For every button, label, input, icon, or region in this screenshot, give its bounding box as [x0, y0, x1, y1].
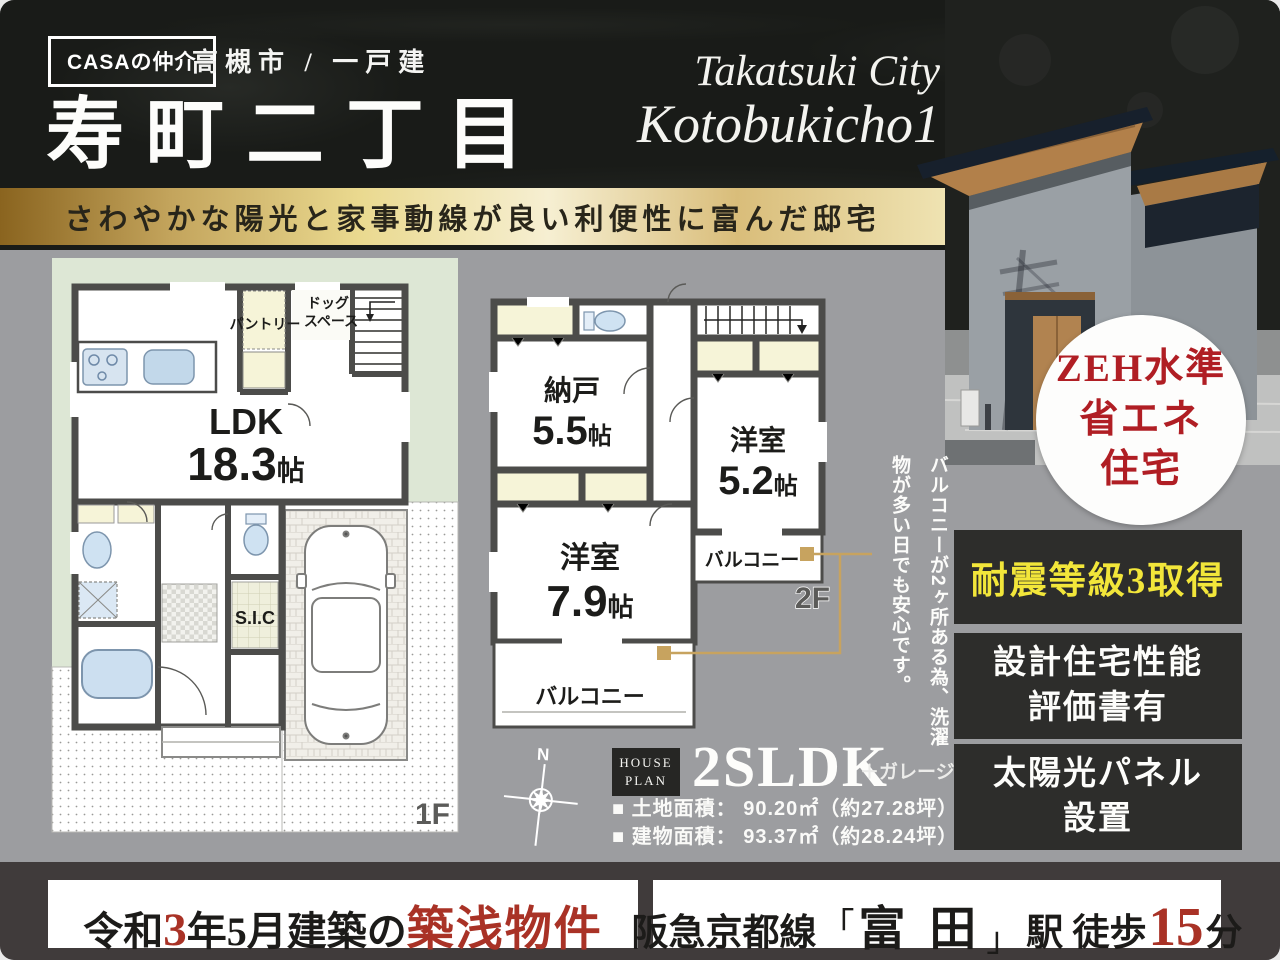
station-access-banner: 阪急京都線「富 田」駅 徒歩15分 [653, 880, 1221, 948]
dog-space-label-1: ドッグ [307, 295, 349, 311]
walk-minutes-unit: 分 [1206, 902, 1243, 956]
performance-report-line2: 評価書有 [1028, 686, 1168, 731]
station-walk-label: 駅 徒歩 [1026, 902, 1146, 956]
floorplan-1f: パントリー ドッグ スペース LDK 18.3帖 S.I.C 1F [50, 252, 460, 837]
built-year-seg4: 築浅物件 [407, 890, 603, 959]
house-plan-tag: HOUSE PLAN [612, 748, 680, 796]
balcony-annotation-text: バルコニーが2ヶ所ある為、洗濯物が多い日でも安心です。 [864, 455, 956, 755]
floorplan-2f: 納戸 5.5帖 洋室 5.2帖 洋室 7.9帖 バルコニー バルコニー 2F [472, 272, 882, 742]
rail-line-name: 阪急京都線 [632, 902, 817, 956]
built-year-seg2: 3 [163, 903, 187, 957]
balcony-bottom-label: バルコニー [535, 684, 645, 709]
house-plan-tag-line2: PLAN [625, 772, 667, 790]
compass-n-label: N [537, 745, 550, 765]
land-area: ■ 土地面積： 90.20㎡（約27.28坪） [612, 792, 958, 821]
station-name: 富 田 [859, 890, 983, 959]
built-year-banner: 令和3年5月建築の築浅物件 [48, 880, 638, 948]
solar-panel-line2: 設置 [1063, 797, 1133, 842]
floor-label-1f: 1F [415, 798, 450, 831]
performance-report-line1: 設計住宅性能 [993, 641, 1203, 686]
solar-panel-line1: 太陽光パネル [993, 752, 1203, 797]
performance-report-badge: 設計住宅性能 評価書有 [954, 633, 1242, 739]
property-title: 寿町二丁目 [46, 72, 546, 184]
built-year-seg1: 令和 [83, 899, 163, 957]
compass: N [499, 742, 582, 852]
west-room-52-label: 洋室 [730, 424, 786, 456]
flyer-page: CASAの仲介 高槻市 / 一戸建 寿町二丁目 Takatsuki City K… [0, 0, 1280, 960]
storage-label: 納戸 [544, 374, 600, 406]
bracket-open: 「 [821, 898, 855, 947]
toilet-2f [584, 311, 625, 331]
washbasin [83, 532, 111, 568]
zeh-badge: ZEH水準 省エネ 住宅 [1036, 315, 1246, 525]
seismic-grade-badge: 耐震等級3取得 [954, 530, 1242, 624]
car [297, 526, 395, 744]
pantry-label: パントリー [230, 316, 301, 332]
ldk-label: LDK [209, 401, 283, 442]
dog-space-label-2: スペース [304, 313, 358, 329]
solar-panel-badge: 太陽光パネル 設置 [954, 744, 1242, 850]
bathtub [82, 650, 152, 698]
balcony-right-label: バルコニー [705, 549, 800, 571]
walk-minutes: 15 [1149, 895, 1204, 958]
built-year-seg3: 年5月建築の [187, 899, 407, 957]
romanized-title: Takatsuki City Kotobukicho1 [600, 48, 940, 155]
sic-label: S.I.C [235, 608, 275, 628]
plan-suffix: ＋ガレージ [860, 757, 955, 784]
west-room-79-label: 洋室 [560, 541, 620, 575]
bracket-close: 」 [986, 912, 1020, 960]
toilet-1f [244, 514, 268, 555]
sink [144, 350, 194, 384]
building-area: ■ 建物面積： 93.37㎡（約28.24坪） [612, 820, 958, 849]
house-plan-tag-line1: HOUSE [619, 754, 672, 772]
romanized-city: Takatsuki City [600, 48, 940, 95]
zeh-line3: 住宅 [1100, 445, 1182, 496]
zeh-line2: 省エネ [1079, 395, 1202, 446]
romanized-town: Kotobukicho1 [600, 95, 940, 154]
footer-band: 令和3年5月建築の築浅物件 阪急京都線「富 田」駅 徒歩15分 [0, 862, 1280, 960]
zeh-line1: ZEH水準 [1056, 344, 1226, 395]
floor-label-2f: 2F [795, 582, 830, 615]
catchphrase-banner: さわやかな陽光と家事動線が良い利便性に富んだ邸宅 [0, 188, 945, 245]
